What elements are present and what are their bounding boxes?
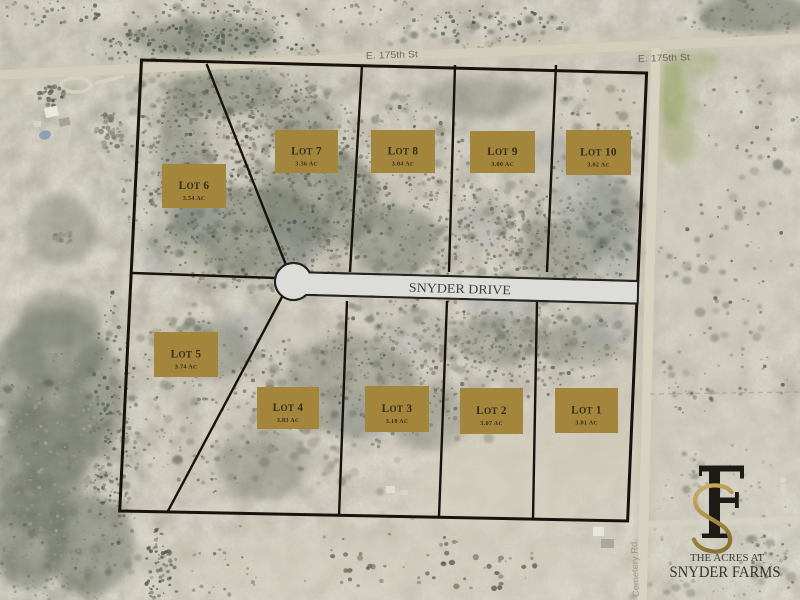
svg-text:THE ACRES AT: THE ACRES AT [690,553,764,564]
svg-text:LOT 5: LOT 5 [171,349,202,361]
svg-text:3.02 AC: 3.02 AC [587,162,610,169]
svg-text:SNYDER FARMS: SNYDER FARMS [670,564,781,581]
svg-text:LOT 8: LOT 8 [388,146,419,158]
svg-text:3.07 AC: 3.07 AC [480,420,503,427]
svg-text:E. 175th St: E. 175th St [638,52,691,65]
svg-text:LOT 3: LOT 3 [382,403,413,415]
svg-text:LOT 1: LOT 1 [571,405,602,417]
svg-text:3.18 AC: 3.18 AC [386,418,409,425]
svg-text:3.00 AC: 3.00 AC [491,161,514,168]
svg-text:3.01 AC: 3.01 AC [575,420,598,427]
svg-text:E. 175th St: E. 175th St [366,49,419,62]
svg-text:3.74 AC: 3.74 AC [175,364,198,371]
svg-text:LOT 10: LOT 10 [580,147,617,159]
svg-text:LOT 4: LOT 4 [273,402,304,414]
svg-text:SNYDER DRIVE: SNYDER DRIVE [409,280,511,298]
svg-text:3.83 AC: 3.83 AC [277,417,300,424]
svg-text:3.36 AC: 3.36 AC [295,161,318,168]
svg-text:LOT 9: LOT 9 [487,146,518,158]
svg-text:3.04 AC: 3.04 AC [392,161,415,168]
svg-text:LOT 6: LOT 6 [179,180,210,192]
svg-text:Cemetery Rd.: Cemetery Rd. [629,539,641,597]
svg-text:LOT 7: LOT 7 [291,146,322,158]
svg-text:3.54 AC: 3.54 AC [183,195,206,202]
svg-text:LOT 2: LOT 2 [476,405,507,417]
